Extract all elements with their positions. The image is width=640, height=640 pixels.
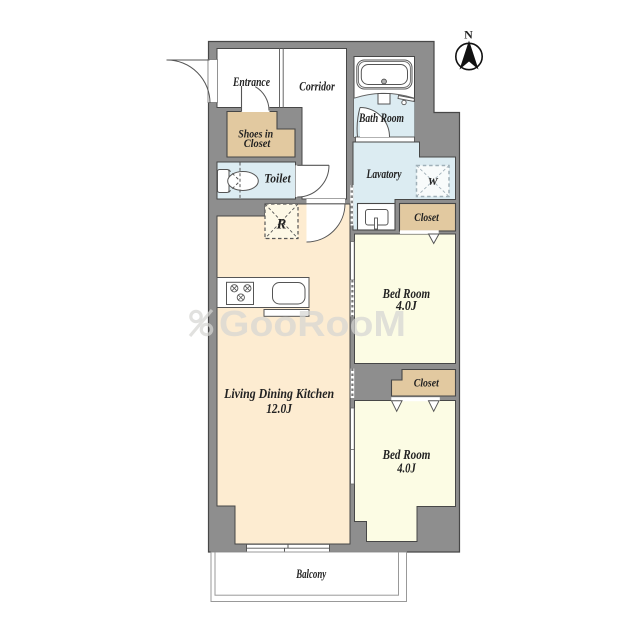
svg-text:Closet: Closet	[244, 136, 271, 150]
svg-text:Entrance: Entrance	[232, 74, 270, 89]
svg-text:N: N	[464, 28, 473, 42]
svg-text:Living Dining Kitchen: Living Dining Kitchen	[223, 387, 334, 402]
svg-text:Balcony: Balcony	[295, 567, 326, 581]
svg-text:GooRooM: GooRooM	[219, 303, 406, 344]
svg-text:Toilet: Toilet	[264, 172, 291, 186]
svg-text:Lavatory: Lavatory	[366, 167, 402, 181]
svg-text:Bath Room: Bath Room	[358, 110, 404, 125]
svg-text:W: W	[428, 176, 439, 188]
svg-text:Corridor: Corridor	[299, 79, 335, 94]
svg-text:4.0J: 4.0J	[396, 461, 416, 476]
svg-text:Closet: Closet	[414, 376, 440, 390]
svg-text:Closet: Closet	[414, 210, 439, 224]
svg-text:12.0J: 12.0J	[266, 402, 293, 417]
svg-text:R: R	[276, 217, 287, 233]
